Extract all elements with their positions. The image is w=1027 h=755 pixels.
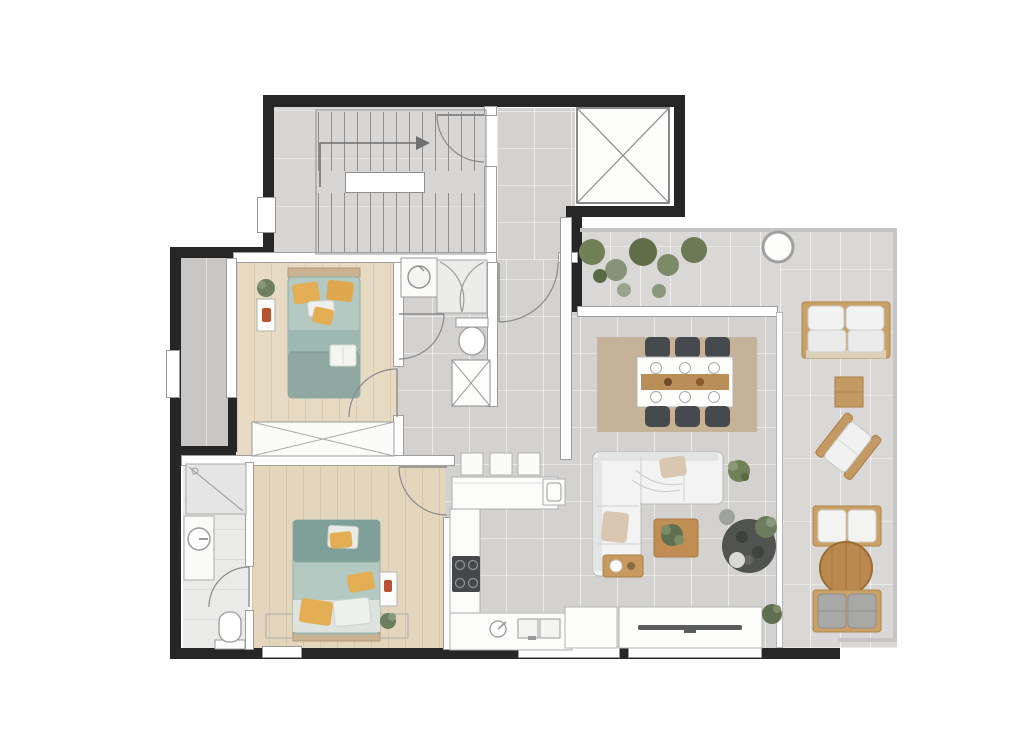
planter-circle <box>763 232 793 262</box>
outdoor-sofa <box>802 302 890 358</box>
outdoor-bench-south <box>813 590 881 632</box>
floor-plan <box>0 0 1027 755</box>
plant-sofa <box>728 460 750 482</box>
walk-in-shower <box>186 464 246 514</box>
bathroom-door <box>209 567 249 607</box>
dining-chairs-top <box>645 337 730 358</box>
potted-arrangement <box>719 509 777 573</box>
toilet-bathroom <box>215 612 245 649</box>
washing-machine <box>401 258 437 297</box>
bedroom2-door <box>399 467 447 515</box>
outdoor-side-table <box>835 377 863 407</box>
toilet-wc <box>456 318 488 355</box>
outdoor-bench-north <box>813 506 881 546</box>
wc-door <box>399 314 444 359</box>
tv-sideboard <box>565 607 762 648</box>
coffee-table <box>654 519 698 557</box>
wardrobe <box>252 422 394 456</box>
dining-table <box>637 357 733 407</box>
kitchen-peninsula <box>452 477 565 509</box>
shower-enclosure <box>437 260 487 313</box>
washbasin-vanity <box>184 516 214 580</box>
dining-chairs-bottom <box>645 406 730 427</box>
side-table <box>603 555 643 577</box>
round-outdoor-table <box>820 542 872 594</box>
duct-shaft <box>452 360 490 406</box>
plant-tv <box>762 604 782 624</box>
kitchen-counter-bottom <box>450 613 572 650</box>
staircase-symbol <box>316 110 486 254</box>
furniture-layer <box>0 0 1027 755</box>
entry-door <box>499 263 558 322</box>
nightstand-1 <box>257 279 275 331</box>
nightstand-2 <box>380 572 397 629</box>
cooktop <box>452 556 480 592</box>
bed-1 <box>288 268 360 398</box>
terrace-plants <box>579 237 707 298</box>
elevator-symbol <box>577 108 669 203</box>
lounge-chair <box>815 412 882 481</box>
bed-2 <box>293 520 380 641</box>
bar-stools <box>461 453 540 475</box>
